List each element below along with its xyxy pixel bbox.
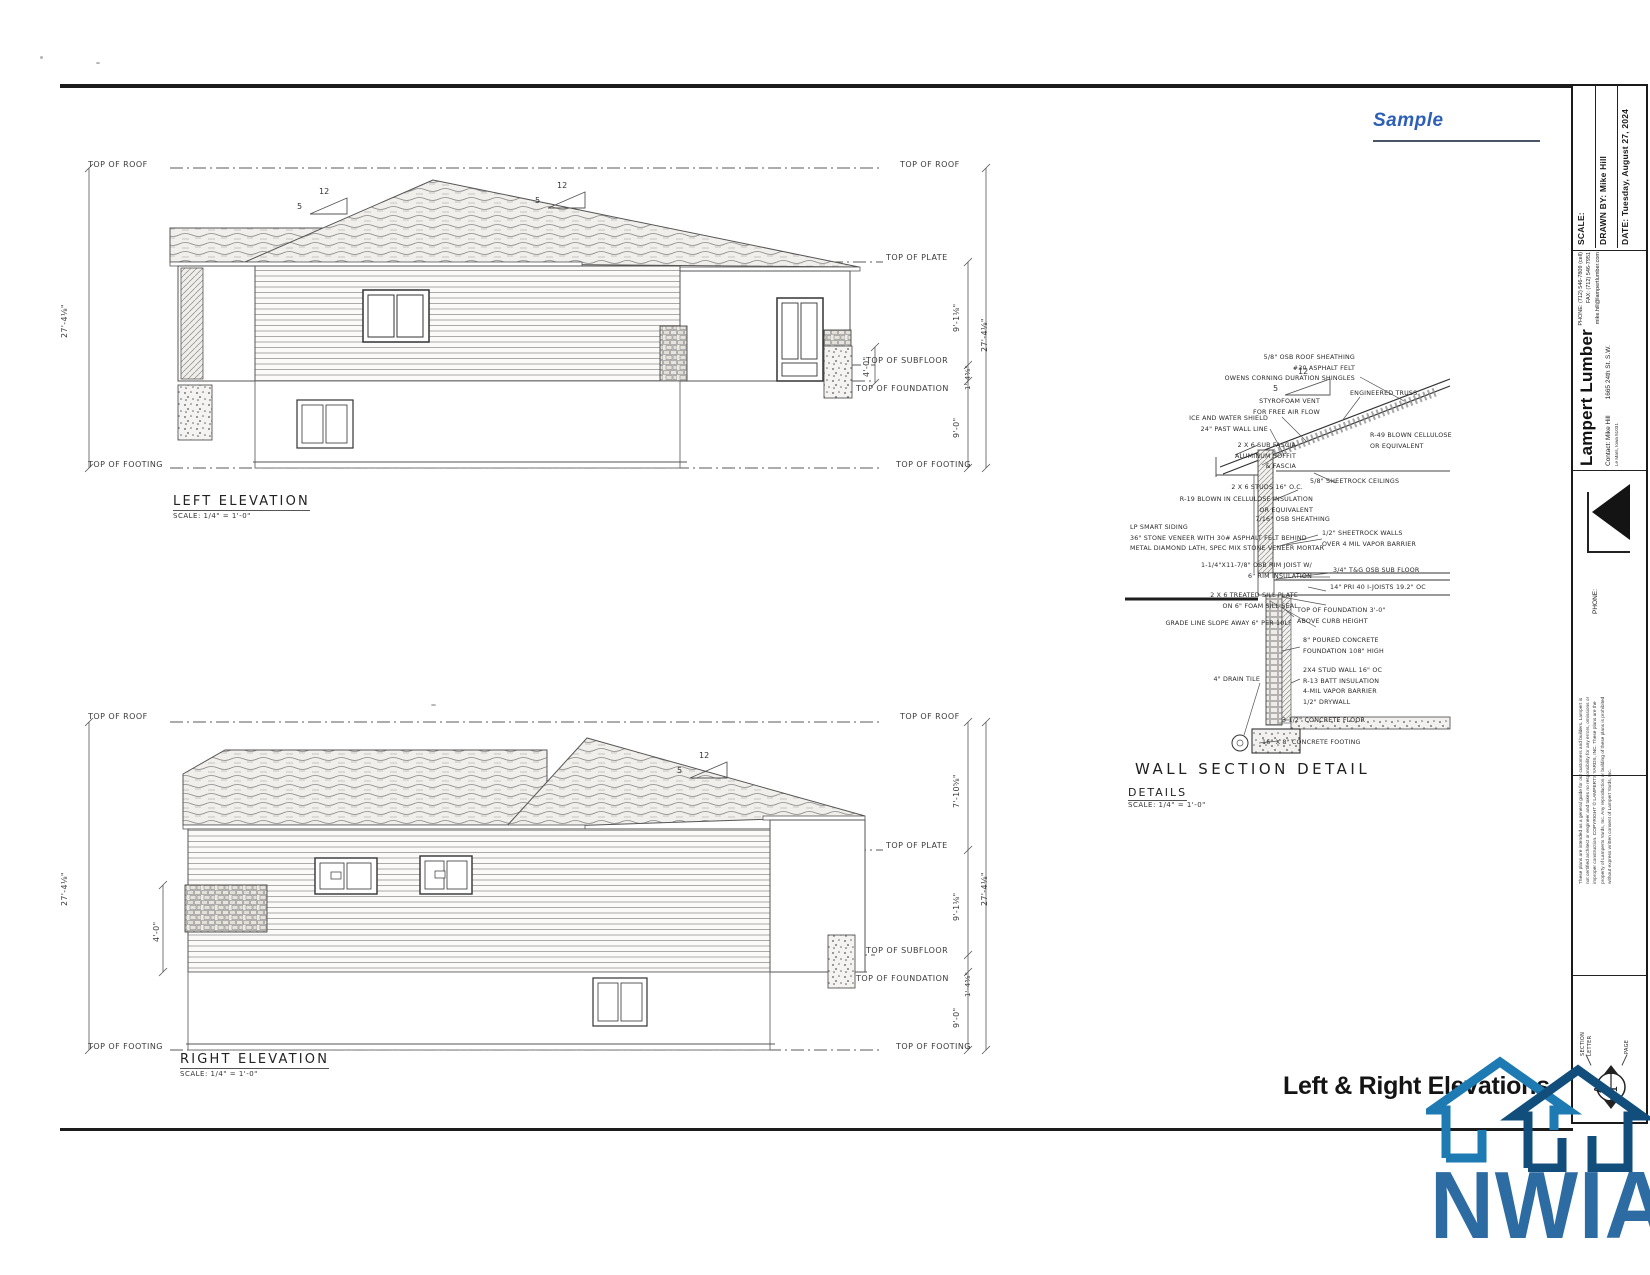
wall-annotation: ICE AND WATER SHIELD 24" PAST WALL LINE (1189, 414, 1268, 435)
dim-roof: 7'-10⅝" (952, 774, 961, 808)
dim-overall: 27'-4⅛" (60, 872, 69, 906)
sample-stamp: Sample (1373, 110, 1444, 132)
wall-annotation: TOP OF FOUNDATION 3'-0" ABOVE CURB HEIGH… (1297, 606, 1386, 627)
company-email: mike.hill@lampertlumber.com (1594, 252, 1602, 326)
level-label-subfloor: TOP OF SUBFLOOR (866, 356, 948, 365)
level-label-subfloor: TOP OF SUBFLOOR (866, 946, 948, 955)
wall-annotation: R-19 BLOWN IN CELLULOSE INSULATION OR EQ… (1180, 495, 1313, 516)
dim-lower: 9'-0" (952, 418, 961, 438)
wall-annotation: 1-1/4"X11-7/8" OSB RIM JOIST W/ 6" RIM I… (1201, 561, 1312, 582)
title-block-divider (1573, 470, 1646, 471)
level-label-roof: TOP OF ROOF (900, 712, 960, 721)
level-label-roof: TOP OF ROOF (88, 712, 148, 721)
title-block-divider (1573, 250, 1646, 251)
level-label-plate: TOP OF PLATE (886, 841, 948, 850)
dim-upper: 9'-1⅛" (952, 304, 961, 333)
dim-small: 4'-0" (862, 357, 871, 377)
section-letter-label: SECTION LETTER (1580, 1032, 1594, 1056)
dim-overall: 27'-4⅛" (60, 304, 69, 338)
wall-annotation: 5/8" SHEETROCK CEILINGS (1310, 477, 1399, 488)
right-elevation-drawing (75, 710, 1015, 1090)
pitch-run: 12 (557, 181, 567, 190)
pitch-rise: 5 (297, 202, 302, 211)
left-elevation: 12 5 12 5 (75, 150, 1015, 530)
wall-annotation: ENGINEERED TRUSS (1350, 389, 1417, 400)
wall-section-title: WALL SECTION DETAIL (1135, 760, 1370, 778)
level-label-footing: TOP OF FOOTING (88, 1042, 163, 1051)
scale-field: SCALE: (1574, 86, 1596, 248)
pitch-rise: 5 (535, 196, 540, 205)
right-elevation-scale: SCALE: 1/4" = 1'-0" (180, 1070, 258, 1078)
level-label-foundation: TOP OF FOUNDATION (856, 384, 949, 393)
wall-annotation: 2 X 6 TREATED SILL PLATE ON 6" FOAM SILL… (1210, 591, 1298, 612)
dim-lower: 9'-0" (952, 1008, 961, 1028)
nwia-logo: NWIA (1426, 1056, 1650, 1275)
dim-overall-right: 27'-4⅛" (980, 872, 989, 906)
level-label-footing: TOP OF FOOTING (896, 1042, 971, 1051)
company-city: Le Mars, Iowa 51031 (1614, 252, 1619, 466)
sample-underline (1373, 140, 1540, 142)
right-elevation: 12 5 (75, 710, 1015, 1090)
lampert-logo-icon (1584, 478, 1639, 558)
left-elevation-title: LEFT ELEVATION (173, 494, 310, 511)
dim-upper: 9'-1⅛" (952, 893, 961, 922)
wall-annotation: R-49 BLOWN CELLULOSE OR EQUIVALENT (1370, 431, 1452, 452)
wall-annotation: 4" DRAIN TILE (1213, 675, 1260, 686)
wall-annotation: 2 X 6 SUB FASCIA ALUMINUM SOFFIT & FASCI… (1235, 441, 1296, 473)
wall-annotation: 2X4 STUD WALL 16" OC R-13 BATT INSULATIO… (1303, 666, 1382, 709)
level-label-plate: TOP OF PLATE (886, 253, 948, 262)
copyright-disclaimer: These plans are intended as a general gu… (1578, 694, 1644, 884)
company-name: Lampert Lumber (1577, 329, 1597, 466)
wall-annotation: LP SMART SIDING 36" STONE VENEER WITH 30… (1130, 523, 1324, 555)
company-address: 1665 24th St. S.W. (1604, 345, 1614, 399)
wall-annotation: GRADE LINE SLOPE AWAY 6" PER 10LF (1165, 619, 1292, 630)
wall-annotation: 3/4" T&G OSB SUB FLOOR (1333, 566, 1419, 577)
wall-annotation: 5/8" OSB ROOF SHEATHING #30 ASPHALT FELT… (1225, 353, 1355, 385)
scan-speck (431, 704, 436, 706)
scan-speck (40, 56, 43, 59)
wall-annotation: 16" X 8" CONCRETE FOOTING (1262, 738, 1361, 749)
wall-annotation: 3 1/2" CONCRETE FLOOR (1282, 716, 1365, 727)
page-label: PAGE (1624, 1040, 1631, 1054)
frame-top (60, 84, 1648, 88)
pitch-run: 12 (699, 751, 709, 760)
title-block-company: Lampert Lumber PHONE: (712) 546-7809 (ce… (1577, 252, 1645, 466)
dim-overall-right: 27'-4⅛" (980, 318, 989, 352)
company-fax: FAX: (712) 546-7951 (1585, 252, 1593, 326)
company-contact: Contact: Mike Hill (1604, 415, 1614, 466)
right-elevation-title: RIGHT ELEVATION (180, 1052, 329, 1069)
left-elevation-scale: SCALE: 1/4" = 1'-0" (173, 512, 251, 520)
wall-annotation: 8" POURED CONCRETE FOUNDATION 108" HIGH (1303, 636, 1384, 657)
dim-stone: 4'-0" (152, 922, 161, 942)
title-block-divider (1573, 975, 1646, 976)
wall-section-subtitle: DETAILS (1128, 786, 1187, 801)
drawing-sheet: Sample (0, 0, 1650, 1275)
level-label-foundation: TOP OF FOUNDATION (856, 974, 949, 983)
nwia-logo-text: NWIA (1430, 1144, 1650, 1269)
frame-bottom (60, 1128, 1573, 1131)
dim-rim: 1'-4⅝" (964, 365, 972, 390)
company-phone: PHONE: (712) 546-7809 (cell) (1577, 252, 1585, 326)
pitch-rise: 5 (677, 766, 682, 775)
pitch-rise: 5 (1273, 384, 1278, 393)
date-field: DATE: Tuesday, August 27, 2024 (1618, 86, 1640, 248)
wall-section-scale: SCALE: 1/4" = 1'-0" (1128, 801, 1206, 809)
phone-label: PHONE: (1592, 570, 1604, 614)
level-label-footing: TOP OF FOOTING (896, 460, 971, 469)
title-block-info: SCALE: DRAWN BY: Mike Hill DATE: Tuesday… (1574, 86, 1644, 248)
level-label-roof: TOP OF ROOF (900, 160, 960, 169)
pitch-run: 12 (319, 187, 329, 196)
wall-annotation: 2 X 6 STUDS 16" O.C. (1231, 483, 1303, 494)
wall-section: 12 5 5/8" OSB ROOF SHEATHING #30 ASPHALT… (1030, 335, 1460, 765)
level-label-footing: TOP OF FOOTING (88, 460, 163, 469)
drawn-by-field: DRAWN BY: Mike Hill (1596, 86, 1618, 248)
wall-annotation: 1/2" SHEETROCK WALLS OVER 4 MIL VAPOR BA… (1322, 529, 1416, 550)
scan-speck (96, 62, 100, 64)
left-elevation-drawing (75, 150, 1015, 530)
dim-rim: 1'-4⅝" (964, 972, 972, 997)
level-label-roof: TOP OF ROOF (88, 160, 148, 169)
wall-annotation: 14" PRI 40 I-JOISTS 19.2" OC (1330, 583, 1426, 594)
